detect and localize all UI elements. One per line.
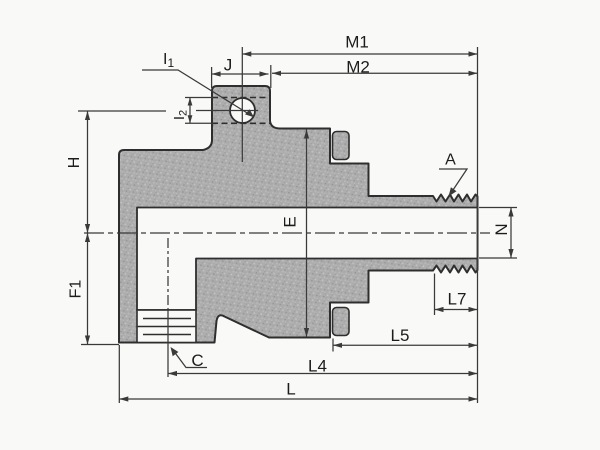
svg-text:N: N — [492, 223, 511, 235]
svg-text:L4: L4 — [308, 357, 327, 376]
svg-text:F1: F1 — [68, 280, 85, 299]
svg-text:M1: M1 — [345, 33, 369, 52]
svg-text:A: A — [445, 152, 456, 169]
svg-text:L5: L5 — [391, 326, 410, 345]
svg-text:E: E — [281, 216, 300, 227]
svg-text:M2: M2 — [346, 58, 370, 77]
svg-text:J: J — [224, 56, 233, 75]
svg-text:L: L — [286, 380, 295, 399]
svg-text:H: H — [66, 157, 83, 169]
svg-text:L7: L7 — [448, 290, 467, 309]
